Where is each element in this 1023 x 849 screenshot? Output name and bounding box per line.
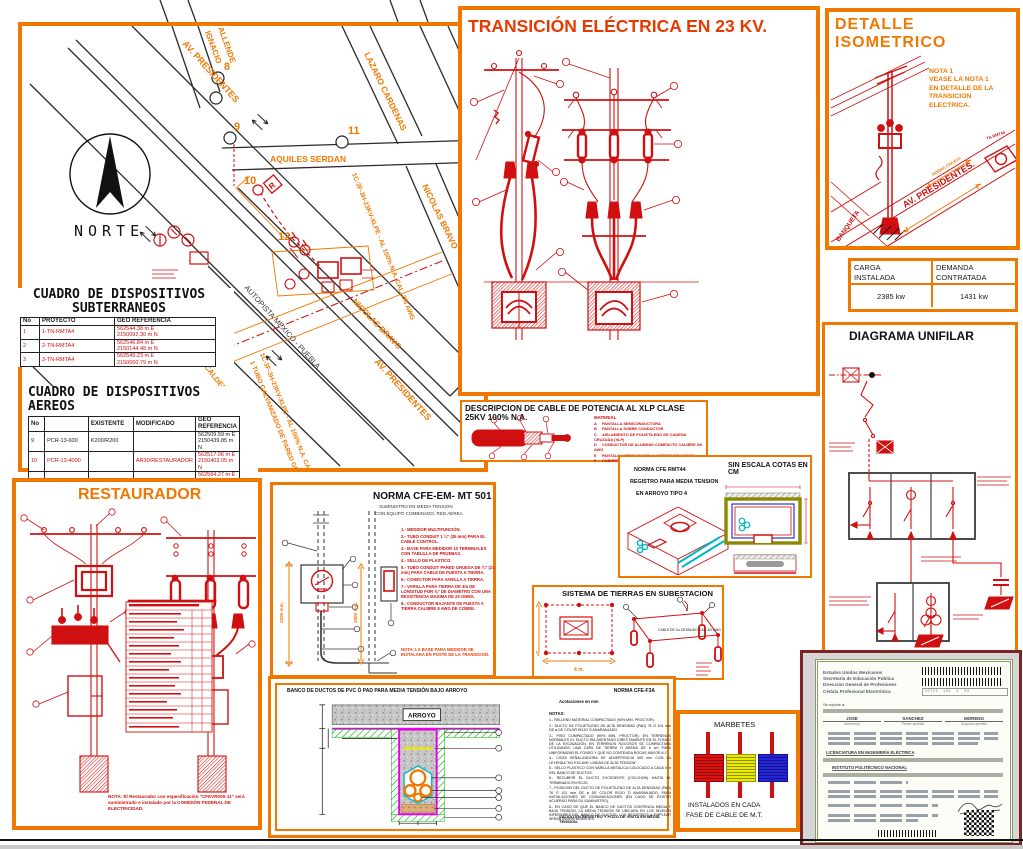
restaurador-drawing [16, 504, 258, 794]
cuadro-subterraneos: CUADRO DE DISPOSITIVOS SUBTERRANEOS No P… [4, 288, 234, 367]
arroyo-label: ARROYO [408, 713, 436, 720]
cuadro-aer-subtitle: AEREOS [28, 400, 258, 414]
marbetes-caption-1: INSTALADOS EN CADA [688, 802, 760, 809]
transicion-panel: TRANSICIÓN ELÉCTRICA EN 23 KV. [458, 6, 820, 396]
marbetes-caption-2: FASE DE CABLE DE M.T. [686, 812, 763, 819]
paragraph-line [828, 790, 998, 793]
paragraph-line [828, 737, 998, 740]
table-row: 10PCR-13-4000AR30/RESTAURADOR562517.06 m… [29, 452, 240, 472]
carga-table: CARGA INSTALADA DEMANDA CONTRATADA 2385 … [848, 258, 1018, 312]
unifilar-panel: DIAGRAMA UNIFILAR [822, 322, 1018, 658]
col-geo: GEO REFERENCIA [115, 318, 216, 326]
table-cell: 562546.84 m E 2150144.48 m N [115, 339, 216, 353]
banco-title: BANCO DE DUCTOS DE PVC Ó PAD PARA MEDIA … [287, 688, 467, 694]
name-header: Segundo apellido [945, 722, 1003, 726]
col-id [45, 417, 89, 432]
node-9: 9 [234, 121, 240, 133]
recloser-tank [52, 626, 108, 644]
table-cell [88, 452, 133, 472]
carga-header: CARGA INSTALADA [851, 261, 933, 285]
dim-left-label: 1800 mm. [279, 602, 284, 623]
list-item: Cédula Profesional Electrónica [823, 689, 897, 695]
cedula-document: Estados Unidos MexicanosSecretaría de Ed… [800, 650, 1022, 846]
cuadro-aer-title: CUADRO DE DISPOSITIVOS [28, 386, 258, 400]
tierras-dim-label: 4 m. [574, 667, 585, 673]
marbete-tags [694, 732, 786, 798]
list-item: 1.- RELLENO MATERIAL COMPACTADO (90% MIN… [549, 718, 671, 722]
table-cell: 9 [29, 432, 45, 452]
detalle-street-label: AV. PRESIDENTES. [901, 159, 976, 210]
marbetes-panel: MARBETES INSTALADOS EN CADA FASE DE CABL… [676, 710, 800, 832]
name-row: JOSENombre(s) SANCHEZPrimer apellido MOR… [823, 716, 1003, 726]
table-header-row: No PROYECTO GEO REFERENCIA [21, 318, 216, 326]
cuadro-aereos: CUADRO DE DISPOSITIVOS AEREOS No EXISTEN… [28, 386, 258, 492]
table-row: 11-TN-RMTA4562544.38 m E 2150092.30 m N [21, 326, 216, 340]
table-row: 33-TN-RMTA4562549.23 m E 2150060.79 m N [21, 353, 216, 367]
node-labels: 8 9 10 11 12 [224, 61, 360, 243]
barcode-top-1 [922, 667, 1002, 675]
window-edge [0, 845, 1023, 849]
table-row: 9PCR-13-600K200/R200562509.59 m E 215043… [29, 432, 240, 452]
table-cell: 2-TN-RMTA4 [40, 339, 115, 353]
banco-acot: Acotaciones en mm [559, 699, 599, 704]
street-av-presidentes-2: AV. PRESIDENTES [373, 357, 434, 423]
norma501-title: NORMA CFE-EM- MT 501 [373, 491, 492, 502]
list-item: 7.- POSICION DEL DUCTO DE POLIETILENO DE… [549, 786, 671, 803]
mini-table [126, 602, 212, 732]
demanda-header: DEMANDA CONTRATADA [933, 261, 1015, 285]
paragraph-line [828, 814, 938, 817]
divider-3 [823, 773, 1003, 777]
table-cell: K200/R200 [88, 432, 133, 452]
north-label: NORTE [74, 222, 144, 240]
restaurador-note: NOTA: El Restaurador con especificación … [108, 794, 258, 812]
banco-drawing: ARROYO [283, 697, 539, 835]
col-existente: EXISTENTE [88, 417, 133, 432]
paragraph-line [828, 819, 918, 822]
registro-section [726, 485, 808, 573]
banco-norma: NORMA CFE-F3A [614, 688, 655, 694]
transicion-title: TRANSICIÓN ELÉCTRICA EN 23 KV. [468, 16, 767, 37]
banco-inner-border: BANCO DE DUCTOS DE PVC Ó PAD PARA MEDIA … [275, 683, 669, 831]
col-geo: GEO REFERENCIA [196, 417, 240, 432]
equipment-cluster-a [152, 226, 208, 278]
col-proyecto: PROYECTO [40, 318, 115, 326]
qr-code [964, 810, 994, 836]
institucion-value: INSTITUTO POLITÉCNICO NACIONAL [832, 765, 907, 771]
paragraph-line [828, 732, 998, 735]
carga-value: 2385 kw [851, 285, 933, 307]
divider-2 [823, 758, 1003, 762]
list-item: 8.- CONDUCTOR BAJANTE DE PUESTA A TIERRA… [401, 601, 495, 611]
norma501-drawing: 1800 mm. 1800 mm. [273, 503, 399, 675]
marbetes-title: MARBETES [714, 720, 755, 729]
cuadro-sub-table: No PROYECTO GEO REFERENCIA 11-TN-RMTA456… [20, 317, 216, 367]
cable-panel: DESCRIPCION DE CABLE DE POTENCIA AL XLP … [460, 400, 708, 462]
cable-drawing [468, 414, 586, 460]
norma501-nota: NOTA: LA BASE PARA MEDIDOR SE INSTALARA … [401, 647, 495, 657]
base-hatch-right [198, 756, 226, 792]
table-cell: 1-TN-RMTA4 [40, 326, 115, 340]
table-cell: 3 [21, 353, 40, 367]
north-compass: NORTE [70, 134, 150, 240]
cable-material-header: MATERIAL [594, 415, 616, 420]
demanda-value: 1431 kw [933, 285, 1015, 307]
node-10: 10 [244, 175, 256, 187]
tierras-drawing: 4 m. CABLE DE Cu DESNUDO CAL. 4/0 AWG [534, 597, 722, 678]
registro-drawing [620, 471, 810, 575]
list-item: Dirección General de Profesiones [823, 682, 897, 688]
norma501-notes: 1.- MEDIDOR MULTIFUNCIÓN.2.- TUBO CONDUI… [401, 527, 495, 613]
col-modificado: MODIFICADO [133, 417, 195, 432]
table-row: 22-TN-RMTA4562546.84 m E 2150144.48 m N [21, 339, 216, 353]
marbete-blue [758, 754, 788, 782]
annotation-lines [829, 443, 1011, 619]
list-item: CAISLAMIENTO DE POLIETILENO DE CADENA CR… [594, 432, 706, 443]
list-item: 5.- SELLO PLASTICO CON VARILLA METALICA … [549, 766, 671, 774]
barcode-bottom [878, 830, 938, 837]
marbete-yellow [726, 754, 756, 782]
registro-label: TN RMT44 [986, 129, 1007, 141]
callou-leaders [282, 540, 396, 661]
cedula-paper: Estados Unidos MexicanosSecretaría de Ed… [815, 659, 1013, 843]
table-cell: AR30/RESTAURADOR [133, 452, 195, 472]
street-nicolas-bravo: NICOLAS BRAVO [420, 182, 460, 250]
divider-1 [823, 709, 1003, 713]
equipment-cluster-b [285, 244, 376, 292]
table-cell: 562549.23 m E 2150060.79 m N [115, 353, 216, 367]
street-aquiles-serdan: AQUILES SERDAN [270, 154, 346, 164]
tierras-panel: SISTEMA DE TIERRAS EN SUBESTACION [532, 585, 724, 680]
transicion-drawing [464, 40, 714, 394]
date-line [828, 781, 908, 784]
restaurador-panel: RESTAURADOR [12, 478, 262, 830]
node-12-symbol [289, 232, 310, 255]
name-header: Nombre(s) [823, 722, 881, 726]
list-item: DCONDUCTOR DE ALUMINIO COMPACTO CALIBRE … [594, 442, 706, 453]
table-cell: 1 [21, 326, 40, 340]
cuadro-sub-subtitle: SUBTERRANEOS [4, 302, 234, 316]
list-item: 2.- TUBO CONDUIT 1 ¼" (35 mm) PARA EL CA… [401, 534, 495, 544]
tierras-cable-label: CABLE DE Cu DESNUDO CAL. 4/0 AWG [658, 628, 721, 632]
list-item: 3.- PISO COMPACTADO (90% MIN. PROCTOR). … [549, 734, 671, 755]
marbete-red [694, 754, 724, 782]
detalle-drawing: AV. PRESIDENTES. BANQUETA NORMA CFE-E7A … [829, 36, 1016, 246]
cuadro-sub-title: CUADRO DE DISPOSITIVOS [4, 288, 234, 302]
col-no: No [21, 318, 40, 326]
plan-sheet: NORTE R 8 9 10 11 12 [0, 0, 1023, 849]
paragraph-line [828, 742, 978, 745]
registro-panel: NORMA CFE RMT44 REGISTRO PARA MEDIA TENS… [618, 455, 812, 578]
list-item: 5.- TUBO CONDUIT PARED GRUESA DE ¾" (21 … [401, 565, 495, 575]
banco-notas-header: NOTAS: [549, 711, 565, 716]
tierras-dims [536, 602, 615, 664]
barcode-top-2 [922, 678, 1002, 686]
carrera-value: LICENCIATURA EN INGENIERÍA ELÉCTRICA [826, 750, 914, 756]
folio-strip: 1 0 7 1 21 5 110 3 [922, 688, 1008, 696]
iso-pole [875, 66, 907, 234]
expide-label: Se expide a: [823, 702, 845, 707]
list-item: 4.- CINTA SEÑALIZADORA DE ADVERTENCIA 30… [549, 756, 671, 764]
street-stubs [60, 0, 460, 22]
banco-panel: BANCO DE DUCTOS DE PVC Ó PAD PARA MEDIA … [268, 676, 676, 838]
banco-footer: VÁLIDO EN REGISTRO Y POZO DE VISITA EN M… [559, 814, 667, 824]
list-item: 6.- CONECTOR PARA VARILLA A TIERRA. [401, 577, 495, 582]
table-cell: PCR-13-600 [45, 432, 89, 452]
norma501-panel: NORMA CFE-EM- MT 501 SUMINISTRO EN MEDIA… [270, 482, 496, 678]
list-item: 7.- VARILLA PARA TIERRA DE 3m DE LONGITU… [401, 584, 495, 599]
unifilar-title: DIAGRAMA UNIFILAR [849, 329, 974, 343]
table-cell: PCR-13-4000 [45, 452, 89, 472]
table-cell: 562509.59 m E 2150439.85 m N [196, 432, 240, 452]
table-cell: 562544.38 m E 2150092.30 m N [115, 326, 216, 340]
list-item: 4.- SELLO DE PLASTICO. [401, 558, 495, 563]
cedula-header: Estados Unidos MexicanosSecretaría de Ed… [823, 670, 897, 695]
table-cell: 3-TN-RMTA4 [40, 353, 115, 367]
table-header-row: No EXISTENTE MODIFICADO GEO REFERENCIA [29, 417, 240, 432]
list-item: 6.- RECUBRIR EL DUCTO EXCEDENTE (COLCHON… [549, 776, 671, 784]
paragraph-line [828, 804, 938, 807]
node-12: 12 [278, 231, 290, 243]
sand-bed [401, 804, 435, 812]
street-lazaro-cardenas: LAZARO CARDENAS [362, 50, 409, 132]
street-nicolas-bravo-2: NICOLAS BRAVO [351, 297, 404, 351]
unifilar-bottom [825, 603, 1015, 657]
table-cell: 562517.06 m E 2150403.05 m N [196, 452, 240, 472]
base-hatch-left [80, 756, 108, 792]
sheet-edge-line [0, 839, 1023, 841]
detalle-panel: DETALLE ISOMETRICO NOTA 1 VEASE LA NOTA … [825, 8, 1020, 250]
table-cell: 2 [21, 339, 40, 353]
col-no: No [29, 417, 45, 432]
sg1-cells [851, 487, 956, 539]
name-header: Primer apellido [884, 722, 942, 726]
restaurador-map-symbol: R [264, 175, 282, 193]
table-cell: 10 [29, 452, 45, 472]
banco-notes: 1.- RELLENO MATERIAL COMPACTADO (90% MIN… [549, 718, 671, 823]
dim-right-label: 1800 mm. [353, 602, 358, 623]
street-autopista: AUTOPISTA MEXICO - PUEBLA [243, 283, 323, 370]
node-11: 11 [348, 125, 360, 137]
list-item: 1.- MEDIDOR MULTIFUNCIÓN. [401, 527, 495, 532]
callout-leaders [470, 58, 681, 302]
restaurador-title: RESTAURADOR [78, 486, 201, 504]
list-item: 2.- DUCTO DE POLIETILENO DE ALTA DENSIDA… [549, 724, 671, 732]
list-item: 3.- BASE PARA MEDIDOR 13 TERMINALES CON … [401, 546, 495, 556]
table-cell [133, 432, 195, 452]
